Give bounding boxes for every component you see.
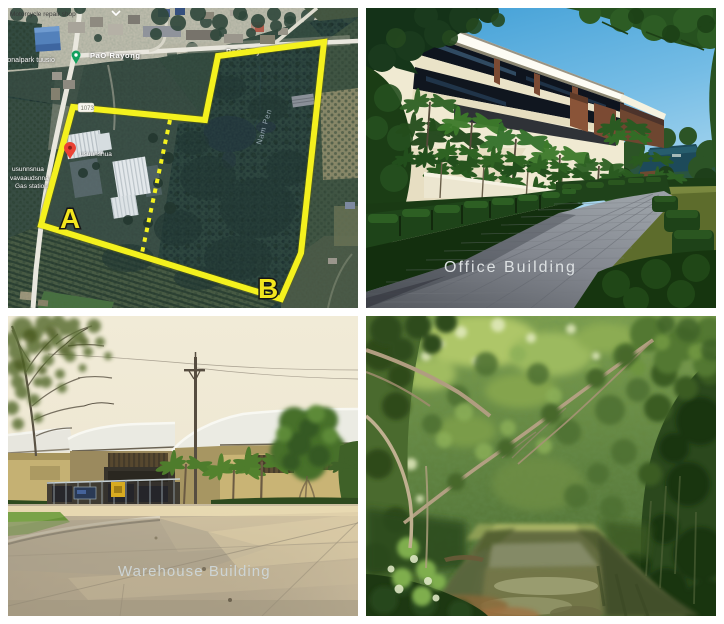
svg-text:Gas station: Gas station [15, 183, 48, 190]
svg-text:1073: 1073 [81, 106, 95, 112]
svg-text:Warehouse Building: Warehouse Building [118, 563, 271, 580]
svg-text:B: B [258, 273, 278, 304]
svg-text:vavaaudsnna: vavaaudsnna [10, 175, 49, 182]
svg-text:Motorcycle repair shop: Motorcycle repair shop [10, 11, 76, 18]
svg-text:A: A [60, 203, 80, 234]
svg-text:Office Building: Office Building [444, 259, 577, 276]
svg-text:PaO Rayong: PaO Rayong [90, 51, 141, 60]
svg-text:ationalpark tuusio: ationalpark tuusio [8, 57, 55, 64]
svg-text:usuunshua: usuunshua [80, 151, 112, 158]
svg-text:usunnsnua: usunnsnua [12, 166, 44, 173]
